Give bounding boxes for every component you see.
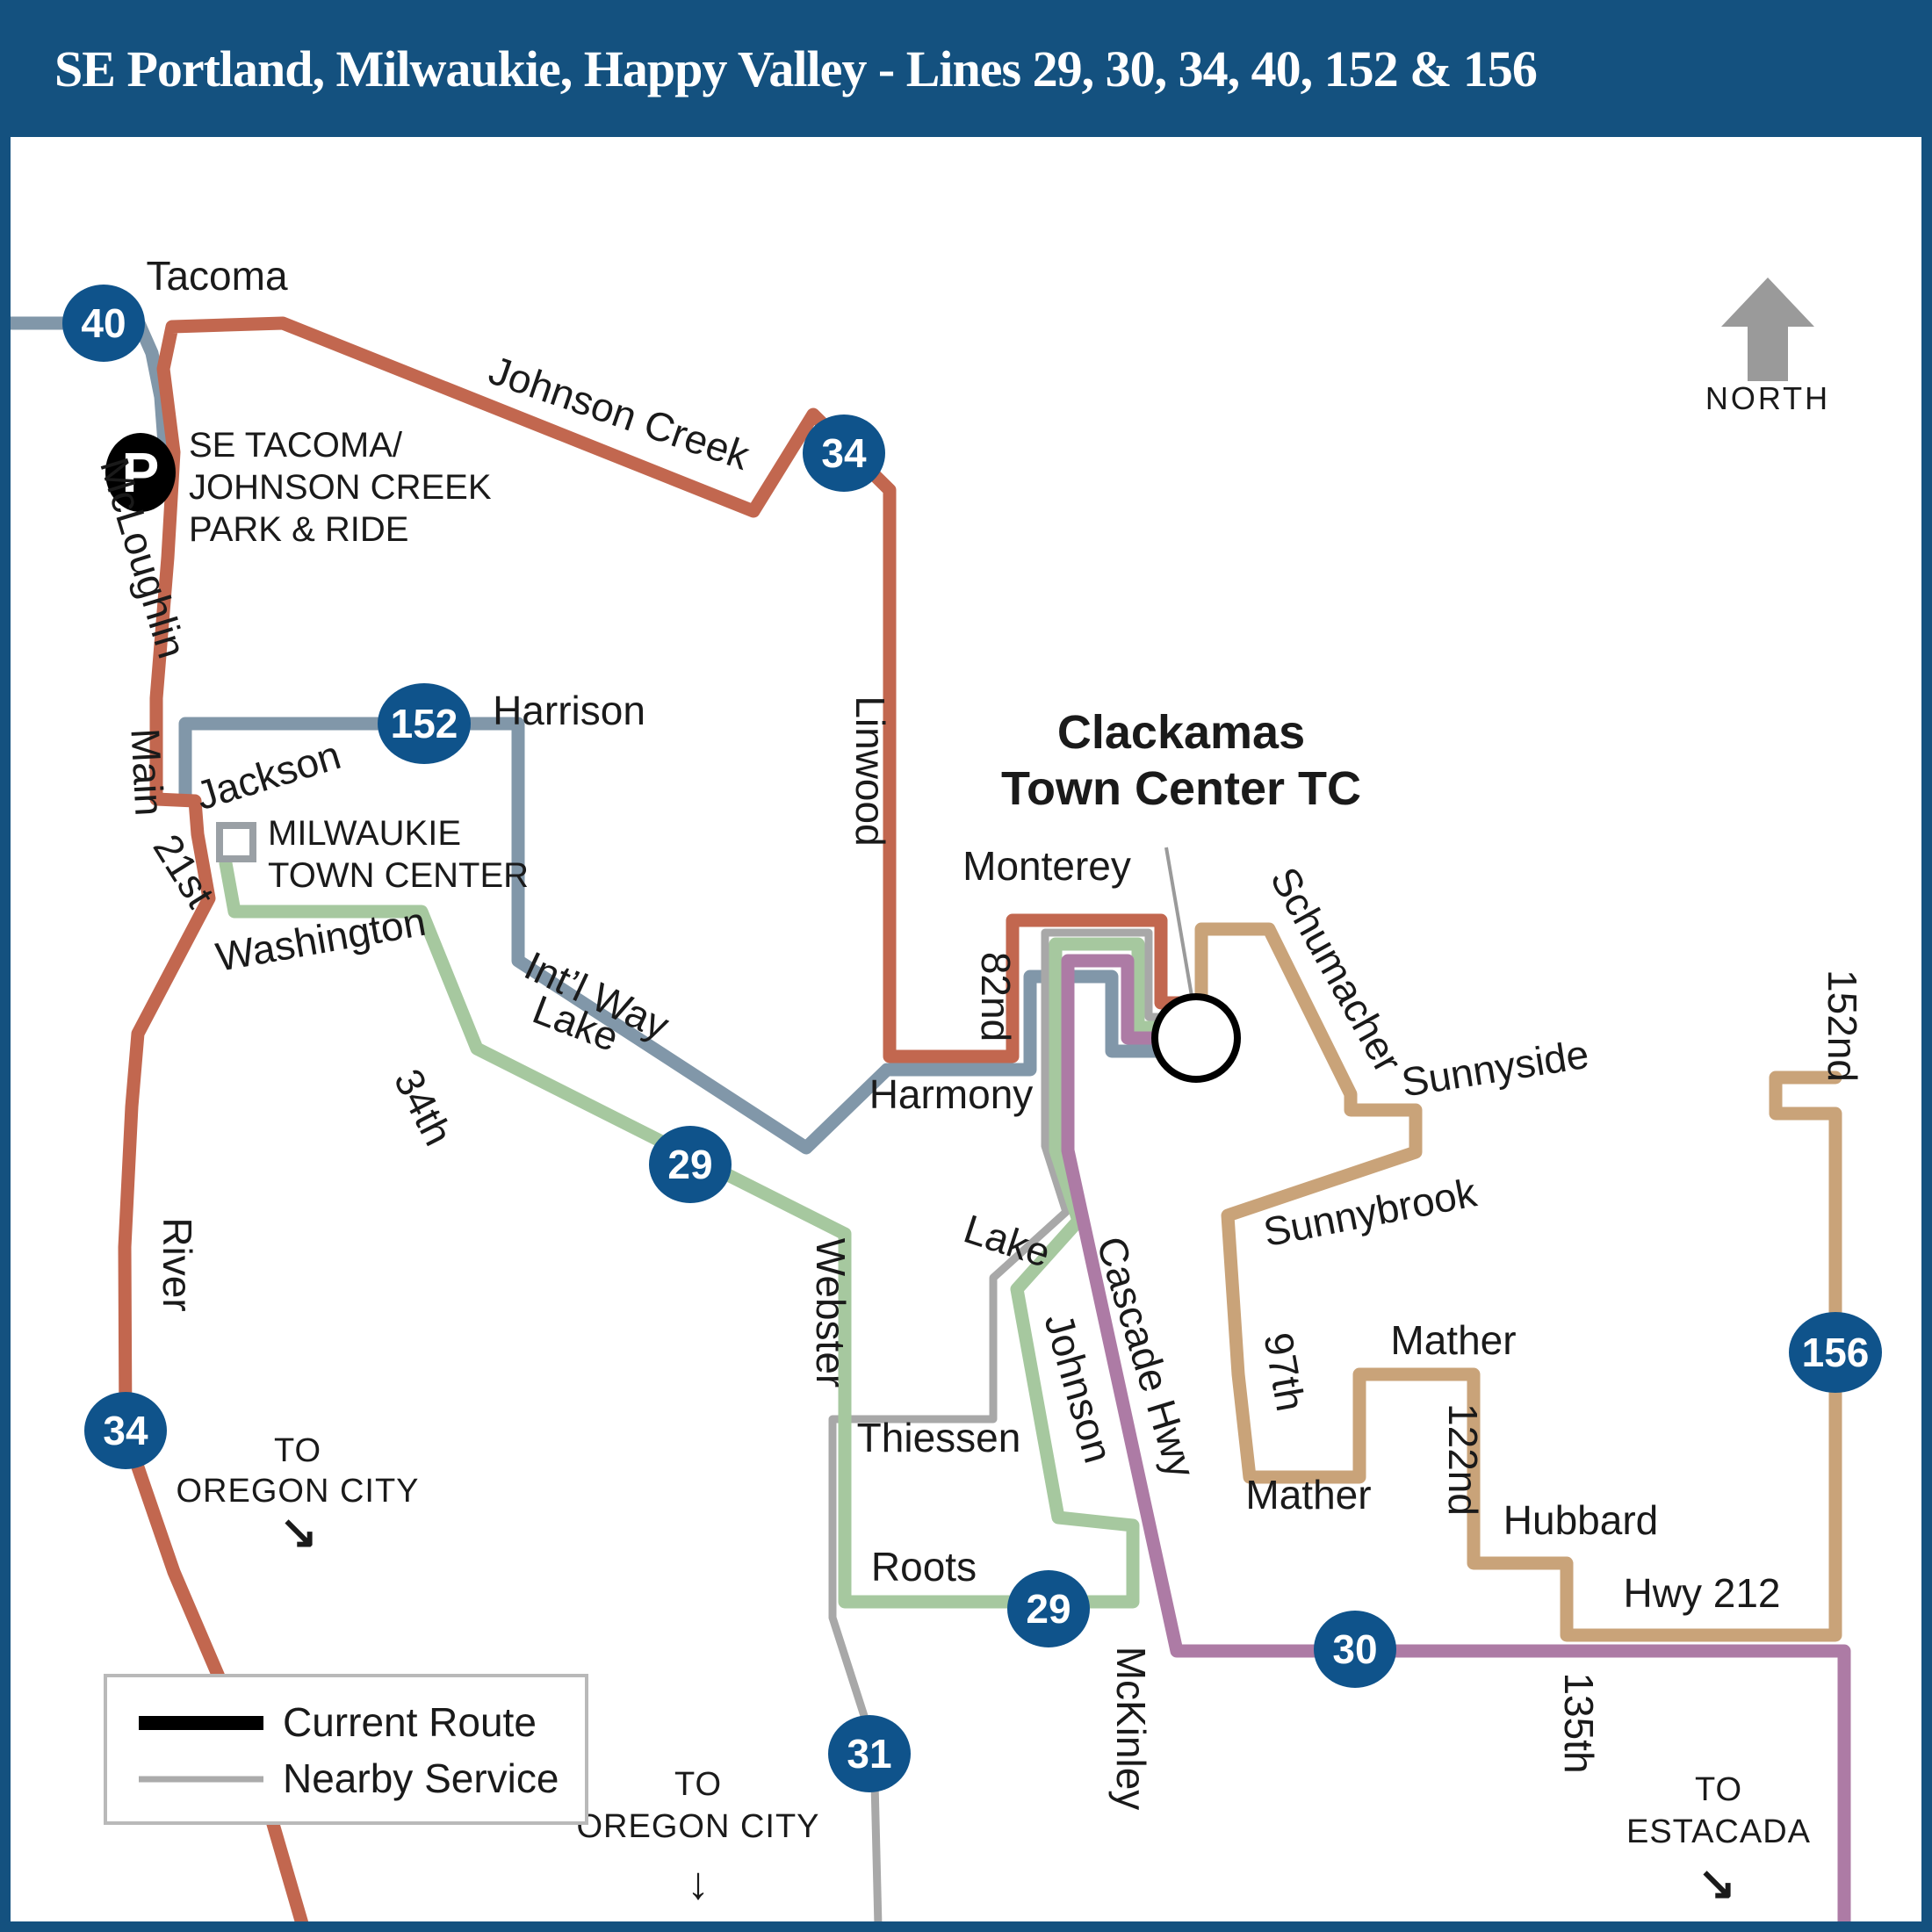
route-badge-152-number: 152: [391, 701, 458, 746]
street-label: 152nd: [1820, 970, 1865, 1082]
street-label: Mather: [1245, 1472, 1371, 1517]
park-and-ride-label: JOHNSON CREEK: [189, 468, 492, 507]
transit-map: ClackamasTown Center TCPSE TACOMA/JOHNSO…: [0, 0, 1932, 1932]
milwaukie-tc-label: MILWAUKIE: [268, 814, 461, 853]
clackamas-tc-label: Clackamas: [1057, 706, 1305, 759]
clackamas-tc-label: Town Center TC: [1001, 762, 1361, 815]
street-label: Harmony: [869, 1071, 1034, 1117]
town-center-square-icon: [220, 825, 253, 859]
map-border: [0, 1921, 1932, 1932]
street-label: Monterey: [962, 843, 1131, 889]
street-label: Harrison: [493, 688, 645, 733]
map-border: [0, 0, 11, 1932]
street-label: Webster: [808, 1238, 854, 1388]
tc-callout-line: [1166, 847, 1193, 1001]
transit-center-circle-icon: [1155, 997, 1237, 1079]
street-label: McKinley: [1108, 1647, 1154, 1811]
route-badge-34-number: 34: [103, 1408, 148, 1453]
street-label: Hubbard: [1503, 1497, 1658, 1543]
page-title: SE Portland, Milwaukie, Happy Valley - L…: [54, 40, 1537, 98]
to-oregon-city-south-label: TO: [674, 1766, 722, 1803]
street-label: Jackson: [191, 732, 346, 818]
map-frame: ClackamasTown Center TCPSE TACOMA/JOHNSO…: [0, 0, 1932, 1932]
to-estacada-arrow-icon: ↘: [1698, 1858, 1736, 1909]
north-arrow-icon: [1721, 278, 1814, 381]
street-label: Sunnybrook: [1259, 1169, 1481, 1255]
street-label: 82nd: [973, 952, 1019, 1042]
to-estacada-label: TO: [1695, 1771, 1742, 1808]
street-label: Tacoma: [146, 253, 287, 299]
street-label: River: [155, 1217, 200, 1311]
street-label: 135th: [1556, 1672, 1602, 1773]
legend-label-nearby: Nearby Service: [283, 1755, 559, 1801]
route-badge-29-number: 29: [667, 1142, 712, 1187]
route-badge-156-number: 156: [1802, 1330, 1870, 1375]
route-badge-31-number: 31: [847, 1731, 891, 1777]
street-label: Roots: [871, 1544, 977, 1590]
to-oregon-city-south-label: OREGON CITY: [576, 1808, 819, 1845]
to-oregon-city-west-label: TO: [274, 1432, 321, 1469]
street-label: McLoughlin: [91, 452, 196, 663]
street-label: 122nd: [1440, 1403, 1486, 1516]
milwaukie-tc-label: TOWN CENTER: [268, 856, 529, 895]
route-badge-40-number: 40: [81, 300, 126, 346]
route-badge-30-number: 30: [1332, 1626, 1377, 1672]
park-and-ride-label: PARK & RIDE: [189, 510, 408, 549]
title-bar: SE Portland, Milwaukie, Happy Valley - L…: [0, 0, 1932, 137]
to-estacada-label: ESTACADA: [1626, 1813, 1811, 1850]
street-label: Hwy 212: [1624, 1570, 1781, 1616]
map-border: [1921, 0, 1932, 1932]
street-label: Thiessen: [857, 1415, 1021, 1460]
street-label: 97th: [1255, 1330, 1314, 1415]
north-label: NORTH: [1705, 380, 1830, 416]
street-label: Main: [122, 727, 172, 817]
street-label: Mather: [1390, 1317, 1516, 1363]
street-label: Sunnyside: [1398, 1031, 1591, 1106]
street-label: 34th: [386, 1062, 462, 1152]
legend-label-current: Current Route: [283, 1699, 537, 1745]
to-oregon-city-west-arrow-icon: ↘: [279, 1507, 318, 1558]
park-and-ride-label: SE TACOMA/: [189, 426, 403, 465]
route-badge-34-number: 34: [821, 430, 867, 476]
route-badge-29-number: 29: [1026, 1586, 1071, 1632]
street-label: Linwood: [847, 696, 893, 846]
to-oregon-city-south-arrow-icon: ↓: [687, 1858, 710, 1909]
to-oregon-city-west-label: OREGON CITY: [176, 1473, 419, 1510]
